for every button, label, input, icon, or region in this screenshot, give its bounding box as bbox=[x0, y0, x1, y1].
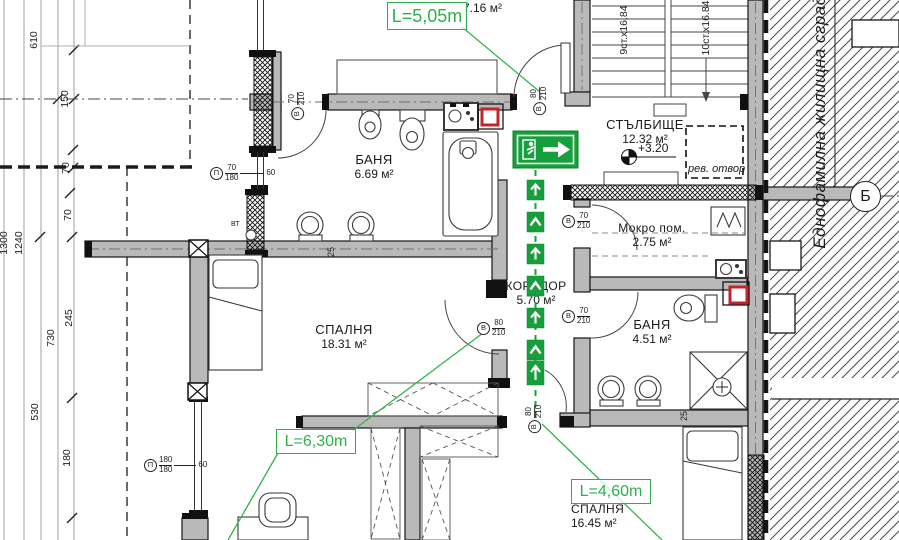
sill-height: 60 bbox=[198, 461, 207, 469]
sill-height: 60 bbox=[266, 169, 275, 177]
exit-sign bbox=[513, 131, 578, 168]
door-marker-bath-top: В 70210 bbox=[288, 92, 306, 120]
escape-arrow bbox=[527, 340, 544, 360]
running-man-icon bbox=[529, 142, 533, 146]
floor-plan-canvas: СТЪЛБИЩЕ 12.32 м² +3.20 рев. отвор БАНЯ … bbox=[0, 0, 899, 540]
window-marker-small: П 70180 60 bbox=[210, 164, 275, 182]
door-marker-bedroom-left: В 80210 bbox=[477, 319, 505, 337]
escape-arrows bbox=[527, 180, 544, 385]
door-marker-wet-room: В 70210 bbox=[562, 212, 590, 230]
grid-axis-b: Б bbox=[850, 181, 881, 212]
window-marker-large: П 180180 60 bbox=[144, 456, 207, 474]
escape-arrow bbox=[527, 276, 544, 296]
escape-length-top: L=5,05m bbox=[387, 2, 467, 30]
escape-route-layer bbox=[0, 0, 899, 540]
escape-arrow bbox=[527, 212, 544, 232]
escape-length-bottom: L=4,60m bbox=[571, 479, 651, 504]
door-marker-stair: В 80210 bbox=[530, 87, 548, 115]
door-marker-bath-right: В 70210 bbox=[562, 307, 590, 325]
door-marker-bedroom-bottom: В 80210 bbox=[525, 405, 543, 433]
escape-length-left: L=6,30m bbox=[276, 429, 356, 454]
